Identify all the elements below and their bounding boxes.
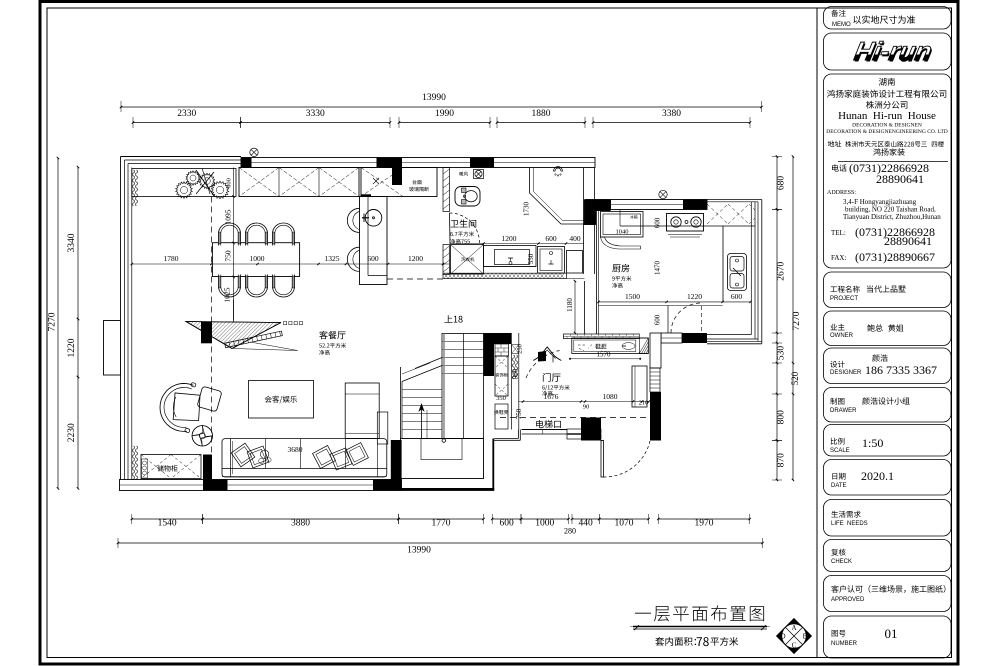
svg-text:350: 350 (496, 395, 506, 402)
svg-text:1325: 1325 (325, 254, 340, 263)
svg-text:13990: 13990 (422, 93, 446, 103)
svg-text:7270: 7270 (792, 311, 802, 330)
svg-text:DESIGNER: DESIGNER (830, 370, 862, 376)
svg-text:1970: 1970 (695, 519, 714, 529)
svg-text:2330: 2330 (177, 109, 196, 119)
svg-text:B: B (803, 633, 808, 641)
svg-text:750: 750 (224, 250, 233, 262)
svg-text:3340: 3340 (67, 233, 77, 252)
svg-text:550: 550 (527, 253, 535, 264)
svg-text:210: 210 (639, 400, 649, 407)
svg-text:3680: 3680 (288, 445, 303, 454)
svg-text:2670: 2670 (777, 262, 787, 281)
svg-text:530: 530 (777, 346, 787, 361)
svg-text:APPROVED: APPROVED (831, 597, 865, 603)
svg-text:1200: 1200 (408, 254, 423, 263)
svg-text:1570: 1570 (597, 351, 612, 359)
svg-text:1770: 1770 (432, 519, 451, 529)
svg-text:1200: 1200 (502, 234, 517, 243)
svg-text:2230: 2230 (67, 423, 77, 442)
svg-text:800: 800 (777, 410, 787, 425)
svg-text:600: 600 (545, 234, 557, 243)
svg-text:250: 250 (517, 344, 524, 354)
svg-text:1220: 1220 (687, 292, 702, 301)
svg-text:Hunan Hi-run House: Hunan Hi-run House (838, 110, 936, 122)
svg-text:3880: 3880 (291, 519, 310, 529)
svg-text:680: 680 (777, 176, 787, 191)
svg-text:1730: 1730 (523, 202, 531, 217)
svg-text:28890641: 28890641 (884, 234, 932, 248)
svg-text:520: 520 (790, 371, 800, 385)
svg-text:DRAWER: DRAWER (830, 408, 857, 414)
svg-text:1540: 1540 (158, 519, 177, 529)
svg-text:SCALE: SCALE (830, 448, 850, 454)
svg-text:LIFE NEEDS: LIFE NEEDS (831, 521, 868, 527)
svg-text:ADDRESS:: ADDRESS: (827, 190, 856, 196)
svg-text:1220: 1220 (67, 338, 77, 357)
svg-text:1000: 1000 (535, 519, 554, 529)
svg-text:1180: 1180 (566, 298, 574, 312)
svg-text:NUMBER: NUMBER (831, 641, 858, 647)
svg-text:1990: 1990 (435, 109, 454, 119)
svg-text:600: 600 (731, 292, 743, 301)
svg-text:1000: 1000 (250, 254, 265, 263)
svg-text:1070: 1070 (614, 519, 633, 529)
svg-text:2020.1: 2020.1 (861, 469, 894, 483)
svg-text:1025: 1025 (223, 287, 232, 302)
svg-text:MEMO: MEMO (832, 22, 851, 28)
svg-text:1095: 1095 (224, 209, 233, 224)
svg-text:7270: 7270 (48, 312, 58, 331)
svg-text:1:50: 1:50 (862, 436, 883, 450)
svg-text:A: A (791, 624, 796, 632)
svg-text:DECORATION & DESIGNEN: DECORATION & DESIGNEN (852, 123, 922, 129)
svg-text:1676: 1676 (544, 392, 559, 401)
svg-text:600: 600 (367, 254, 379, 263)
svg-text:28890641: 28890641 (876, 172, 924, 186)
svg-text:1470: 1470 (654, 261, 662, 276)
svg-text:1500: 1500 (625, 292, 640, 301)
svg-text:186 7335 3367: 186 7335 3367 (865, 363, 937, 377)
svg-text:TEL:: TEL: (831, 229, 846, 237)
svg-text:OWNER: OWNER (830, 333, 854, 339)
svg-text:3380: 3380 (662, 109, 681, 119)
svg-text:CHECK: CHECK (831, 559, 852, 565)
svg-text:(0731)28890667: (0731)28890667 (855, 250, 935, 264)
svg-text:3330: 3330 (306, 109, 325, 119)
svg-text:600: 600 (654, 314, 662, 325)
svg-text:1880: 1880 (532, 109, 551, 119)
svg-text:13990: 13990 (407, 546, 431, 556)
svg-text:90: 90 (583, 404, 590, 411)
svg-text:PROJECT: PROJECT (830, 296, 858, 302)
svg-text:Tianyuan District, Zhuzhou,Hun: Tianyuan District, Zhuzhou,Hunan (843, 213, 941, 221)
svg-text:C: C (792, 642, 797, 650)
svg-text:1040: 1040 (616, 229, 629, 236)
svg-text:DECORATION & DESIGNENGINEERING: DECORATION & DESIGNENGINEERING CO. LTD (826, 129, 948, 135)
svg-text:1780: 1780 (164, 254, 179, 263)
svg-text:440: 440 (579, 519, 594, 529)
svg-text:600: 600 (654, 217, 662, 228)
svg-text:DATE: DATE (831, 483, 847, 489)
svg-text:FAX:: FAX: (831, 254, 846, 262)
svg-text:400: 400 (569, 234, 581, 243)
svg-text:870: 870 (777, 453, 787, 468)
svg-text:280: 280 (564, 527, 576, 536)
svg-text:D: D (780, 633, 785, 641)
svg-text:600: 600 (499, 519, 514, 529)
svg-text:01: 01 (885, 626, 898, 641)
svg-text:600: 600 (226, 178, 233, 188)
svg-text:1080: 1080 (603, 392, 618, 401)
